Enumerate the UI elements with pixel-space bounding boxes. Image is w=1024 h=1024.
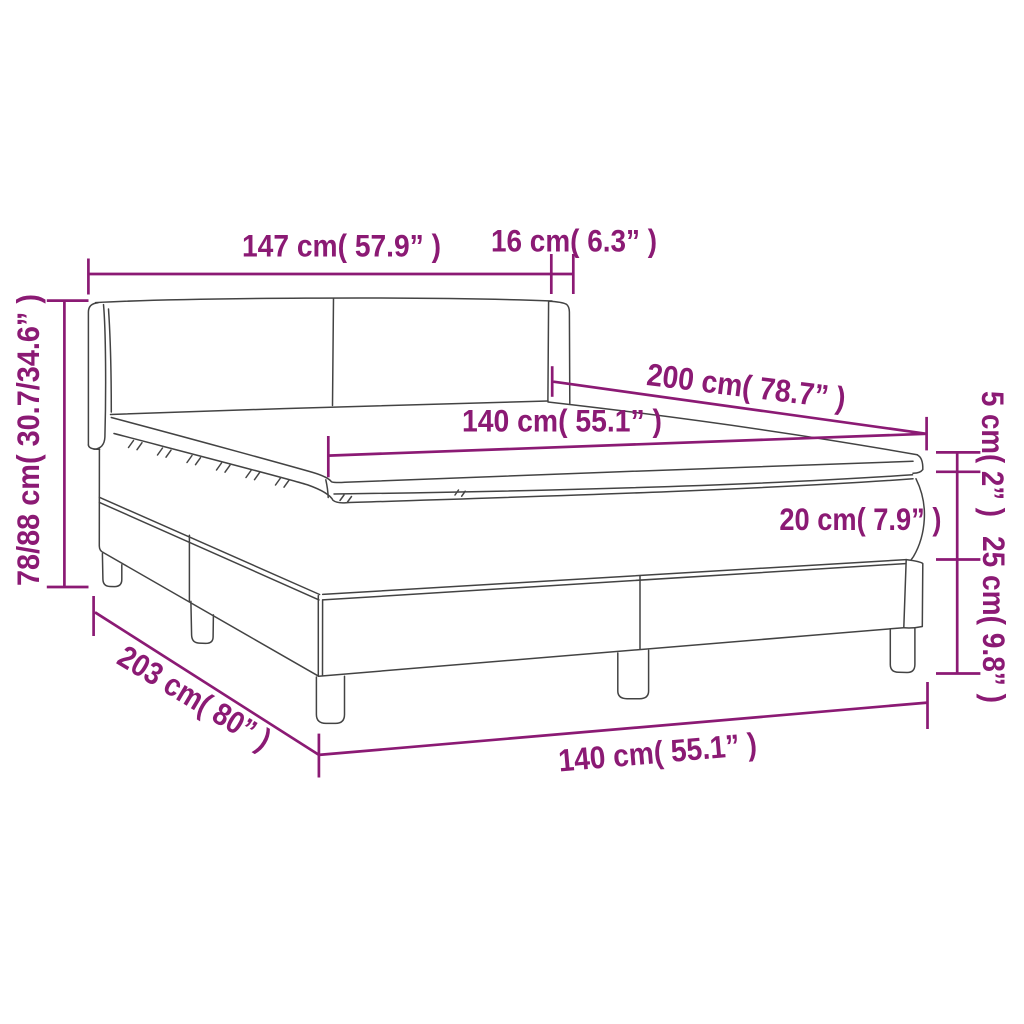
svg-text:78/88 cm( 30.7/34.6” ): 78/88 cm( 30.7/34.6” )	[10, 294, 46, 586]
svg-text:25 cm( 9.8” ): 25 cm( 9.8” )	[976, 536, 1012, 703]
svg-text:140 cm( 55.1” ): 140 cm( 55.1” )	[462, 403, 662, 439]
svg-text:16 cm( 6.3” ): 16 cm( 6.3” )	[491, 222, 657, 258]
svg-text:147 cm( 57.9” ): 147 cm( 57.9” )	[242, 228, 441, 264]
svg-text:20 cm( 7.9” ): 20 cm( 7.9” )	[779, 501, 941, 537]
svg-text:5 cm( 2” ): 5 cm( 2” )	[975, 391, 1011, 517]
